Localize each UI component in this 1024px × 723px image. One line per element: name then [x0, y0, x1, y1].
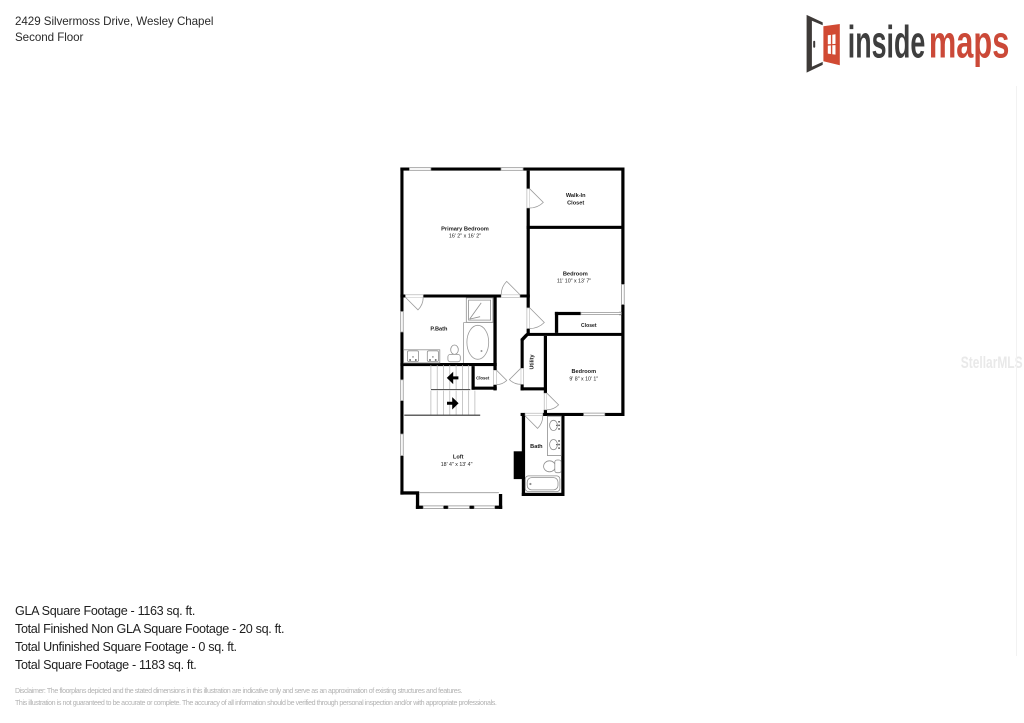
svg-text:Closet: Closet: [581, 323, 597, 329]
svg-text:Closet: Closet: [567, 201, 584, 207]
svg-text:Closet: Closet: [476, 375, 490, 380]
svg-text:Loft: Loft: [453, 455, 464, 461]
svg-text:Bedroom: Bedroom: [563, 271, 588, 277]
svg-text:Walk-In: Walk-In: [566, 193, 586, 199]
svg-text:Bath: Bath: [530, 444, 543, 450]
svg-text:Utility: Utility: [530, 355, 536, 370]
svg-text:Primary Bedroom: Primary Bedroom: [441, 226, 489, 232]
svg-text:18' 4" x 13' 4": 18' 4" x 13' 4": [441, 462, 473, 468]
svg-text:Bedroom: Bedroom: [572, 369, 597, 375]
svg-text:inside: inside: [848, 17, 926, 68]
svg-text:16' 2" x 16' 2": 16' 2" x 16' 2": [449, 234, 481, 240]
svg-text:9' 8" x 10' 1": 9' 8" x 10' 1": [569, 377, 598, 383]
svg-text:11' 10" x 13' 7": 11' 10" x 13' 7": [557, 279, 591, 285]
svg-text:maps: maps: [929, 17, 1010, 68]
svg-text:P.Bath: P.Bath: [430, 327, 448, 333]
svg-text:StellarMLS: StellarMLS: [961, 354, 1023, 372]
